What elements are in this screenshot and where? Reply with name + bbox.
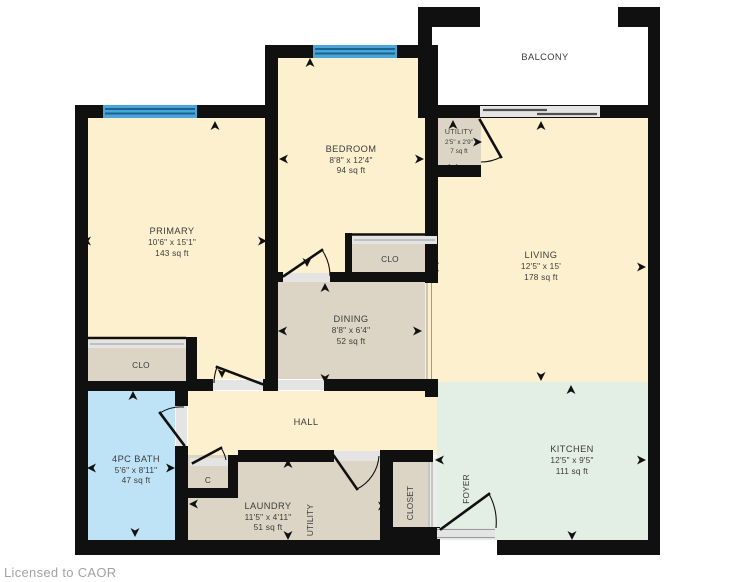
laundry-label: LAUNDRY [244, 501, 291, 511]
dining-label: DINING [334, 314, 369, 324]
bath-area: 47 sq ft [122, 475, 151, 485]
kitchen-label: KITCHEN [550, 444, 594, 454]
bath-label: 4PC BATH [112, 454, 160, 464]
window [313, 45, 397, 58]
closet-label: CLOSET [405, 486, 415, 520]
wall [380, 450, 393, 540]
wall [497, 540, 660, 555]
utility-small-area: 7 sq ft [450, 148, 468, 155]
wall [330, 272, 425, 282]
wall [175, 446, 188, 540]
bedroom-area: 94 sq ft [337, 165, 366, 175]
foyer-label: FOYER [461, 474, 471, 504]
primary-label: PRIMARY [150, 226, 195, 236]
dining-dims: 8'8" x 6'4" [332, 325, 370, 335]
license-text: Licensed to CAOR [4, 565, 116, 580]
laundry-door-threshold [334, 451, 380, 461]
wall [432, 165, 481, 177]
utility-small-label: UTILITY [445, 129, 473, 136]
floor-plan-svg: BALCONY PRIMARY 10'6" x 15'1" 143 sq ft … [0, 0, 742, 582]
bedroom-door-threshold [283, 273, 330, 282]
kitchen-dims: 12'5" x 9'5" [550, 455, 593, 465]
hall-label: HALL [294, 417, 319, 427]
wall [648, 7, 660, 555]
wall [175, 391, 188, 406]
kitchen-area: 111 sq ft [556, 466, 589, 476]
wall [238, 450, 334, 462]
living-area: 178 sq ft [524, 272, 558, 282]
wall [186, 337, 197, 391]
wall [278, 272, 283, 282]
clo-bedroom-label: CLO [381, 254, 399, 264]
balcony-label: BALCONY [521, 52, 568, 62]
primary-dims: 10'6" x 15'1" [148, 237, 196, 247]
wall [425, 45, 438, 283]
wall [197, 379, 213, 391]
laundry-area: 51 sq ft [254, 522, 283, 532]
living-label: LIVING [525, 250, 558, 260]
primary-area: 143 sq ft [155, 248, 189, 258]
living-dims: 12'5" x 15' [521, 261, 561, 271]
wall [263, 379, 278, 391]
window [103, 105, 197, 118]
utility-small-dims: 2'5" x 2'9" [445, 139, 473, 146]
wall [75, 105, 88, 555]
clo-primary-label: CLO [132, 360, 150, 370]
wall [418, 7, 480, 27]
wall [265, 45, 278, 391]
wall [324, 379, 438, 391]
floor-plan: BALCONY PRIMARY 10'6" x 15'1" 143 sq ft … [0, 0, 742, 582]
bedroom-dims: 8'8" x 12'4" [329, 155, 372, 165]
bath-dims: 5'6" x 8'11" [115, 465, 158, 475]
wall [188, 488, 238, 498]
dining-hall-opening [278, 380, 324, 390]
wall [425, 379, 438, 397]
wall [75, 540, 440, 555]
utility-room-label: UTILITY [305, 504, 315, 537]
balcony-sliding-door [480, 106, 600, 117]
wall [75, 381, 197, 391]
kitchen-floor [437, 382, 648, 540]
c-closet-label: C [205, 475, 211, 485]
laundry-dims: 11'5" x 4'11" [245, 512, 292, 522]
bedroom-label: BEDROOM [326, 144, 377, 154]
dining-area: 52 sq ft [337, 336, 366, 346]
balcony-floor [432, 27, 648, 105]
